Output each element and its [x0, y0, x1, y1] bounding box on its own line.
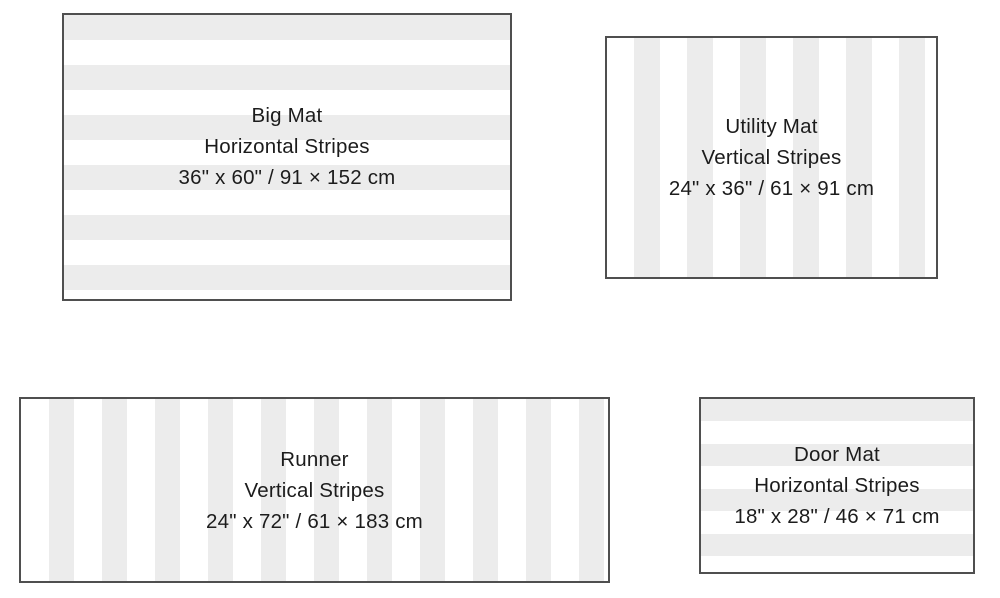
mat-utility-label: Utility Mat Vertical Stripes 24" x 36" /…: [669, 111, 874, 204]
mat-big-label: Big Mat Horizontal Stripes 36" x 60" / 9…: [179, 100, 396, 193]
mat-name: Runner: [206, 444, 423, 475]
mat-dimensions: 36" x 60" / 91 × 152 cm: [179, 162, 396, 193]
mat-big: Big Mat Horizontal Stripes 36" x 60" / 9…: [62, 13, 512, 301]
mat-runner-label: Runner Vertical Stripes 24" x 72" / 61 ×…: [206, 444, 423, 537]
mat-name: Door Mat: [734, 439, 939, 470]
mat-utility: Utility Mat Vertical Stripes 24" x 36" /…: [605, 36, 938, 279]
mat-door-label: Door Mat Horizontal Stripes 18" x 28" / …: [734, 439, 939, 532]
mat-pattern: Vertical Stripes: [669, 142, 874, 173]
mat-pattern: Horizontal Stripes: [734, 470, 939, 501]
mat-dimensions: 24" x 36" / 61 × 91 cm: [669, 173, 874, 204]
mat-pattern: Vertical Stripes: [206, 475, 423, 506]
mat-door: Door Mat Horizontal Stripes 18" x 28" / …: [699, 397, 975, 574]
mat-pattern: Horizontal Stripes: [179, 131, 396, 162]
mat-dimensions: 18" x 28" / 46 × 71 cm: [734, 501, 939, 532]
mat-name: Utility Mat: [669, 111, 874, 142]
mat-dimensions: 24" x 72" / 61 × 183 cm: [206, 506, 423, 537]
mat-runner: Runner Vertical Stripes 24" x 72" / 61 ×…: [19, 397, 610, 583]
mat-name: Big Mat: [179, 100, 396, 131]
